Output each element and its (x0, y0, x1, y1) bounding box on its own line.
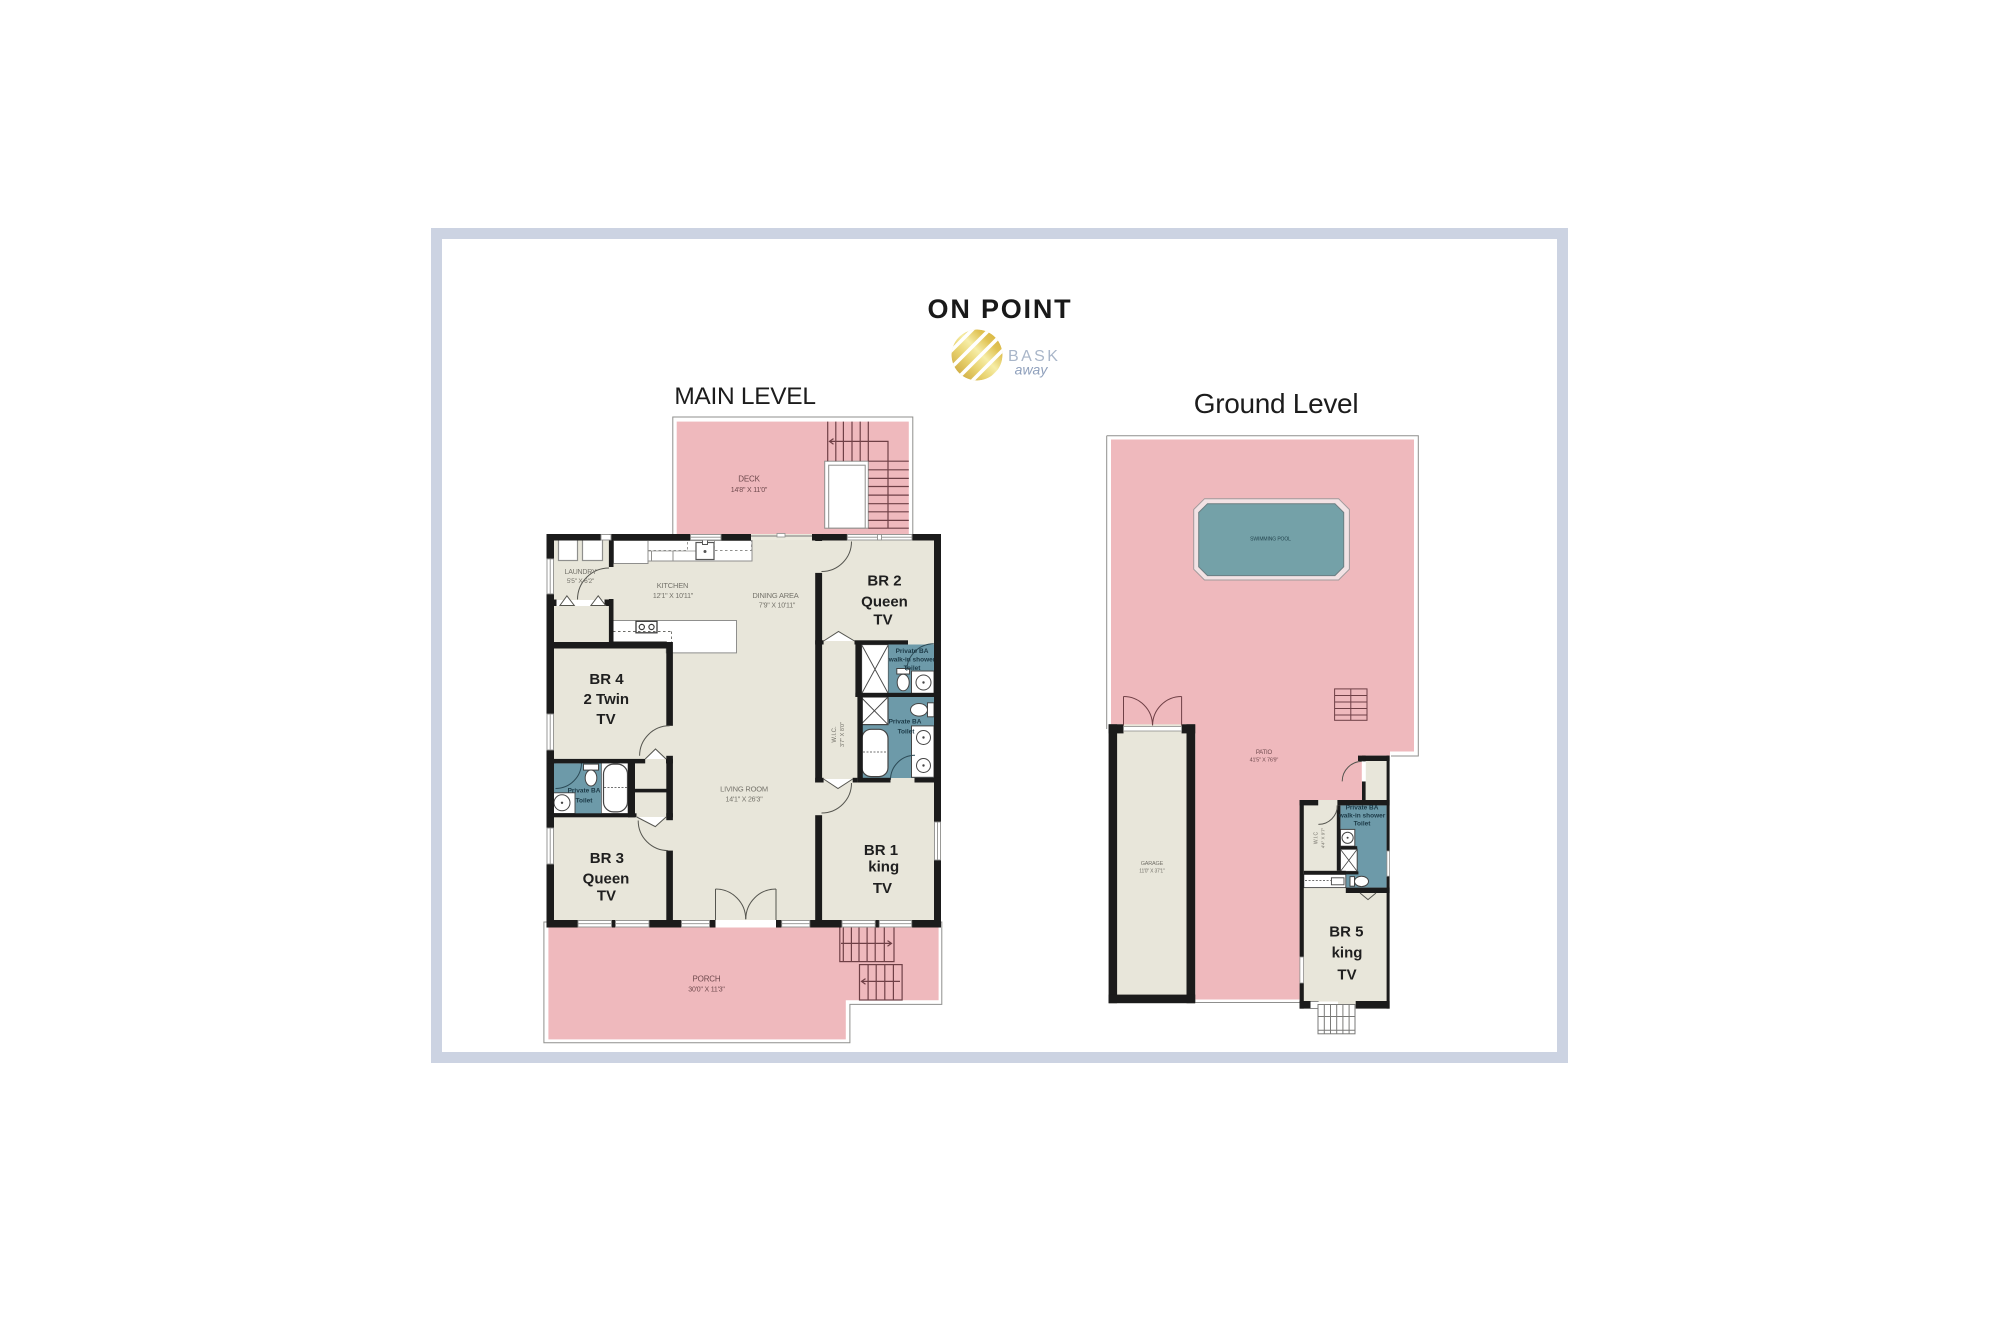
svg-text:TV: TV (873, 611, 892, 628)
svg-text:TV: TV (1337, 967, 1356, 984)
svg-text:12'1" X 10'11": 12'1" X 10'11" (653, 593, 694, 600)
svg-text:W.I.C: W.I.C (1314, 832, 1320, 845)
svg-text:walk-in shower: walk-in shower (888, 657, 936, 664)
svg-text:BR 5: BR 5 (1329, 924, 1363, 941)
svg-text:SWIMMING POOL: SWIMMING POOL (1250, 537, 1291, 543)
svg-text:Toilet: Toilet (904, 665, 922, 672)
svg-text:DINING AREA: DINING AREA (752, 591, 798, 600)
svg-text:Toilet: Toilet (576, 798, 594, 805)
svg-text:KITCHEN: KITCHEN (657, 581, 689, 590)
svg-text:Private BA: Private BA (896, 648, 929, 655)
svg-text:Private BA: Private BA (889, 719, 922, 726)
svg-text:walk-in shower: walk-in shower (1338, 813, 1386, 820)
svg-text:BR 1: BR 1 (864, 842, 898, 859)
svg-text:ON POINT: ON POINT (928, 294, 1073, 324)
svg-text:TV: TV (596, 711, 615, 728)
svg-text:Toilet: Toilet (1354, 821, 1372, 828)
svg-text:7'9" X 10'11": 7'9" X 10'11" (759, 603, 796, 610)
svg-text:Queen: Queen (861, 593, 908, 610)
svg-text:Queen: Queen (583, 871, 630, 888)
svg-text:30'0" X 11'3": 30'0" X 11'3" (688, 986, 725, 993)
svg-text:3'7" X 8'0": 3'7" X 8'0" (840, 722, 846, 747)
svg-text:TV: TV (597, 888, 616, 905)
svg-text:14'8" X 11'0": 14'8" X 11'0" (731, 487, 768, 494)
svg-text:BR 2: BR 2 (867, 573, 901, 590)
svg-text:away: away (1015, 362, 1049, 378)
svg-text:king: king (1332, 945, 1363, 962)
svg-text:Ground Level: Ground Level (1194, 388, 1359, 419)
svg-text:41'5" X 76'9": 41'5" X 76'9" (1250, 758, 1279, 764)
svg-text:PATIO: PATIO (1256, 750, 1273, 756)
svg-text:5'5" X 6'2": 5'5" X 6'2" (567, 578, 595, 585)
svg-text:4'4" X 9'7": 4'4" X 9'7" (1321, 827, 1326, 848)
svg-text:LAUNDRY: LAUNDRY (565, 569, 597, 576)
svg-text:king: king (868, 859, 899, 876)
svg-text:W.I.C.: W.I.C. (832, 726, 838, 743)
svg-text:TV: TV (873, 880, 892, 897)
svg-text:Toilet: Toilet (898, 729, 916, 736)
svg-text:BR 3: BR 3 (590, 850, 624, 867)
svg-text:LIVING ROOM: LIVING ROOM (720, 785, 768, 794)
svg-text:Private BA: Private BA (1346, 805, 1379, 812)
svg-text:DECK: DECK (738, 475, 760, 484)
svg-text:BR 4: BR 4 (589, 671, 624, 688)
svg-text:14'1" X 26'3": 14'1" X 26'3" (726, 797, 764, 804)
svg-text:GARAGE: GARAGE (1141, 861, 1164, 867)
svg-text:MAIN LEVEL: MAIN LEVEL (674, 383, 815, 410)
svg-text:Private BA: Private BA (568, 788, 601, 795)
svg-text:PORCH: PORCH (693, 975, 721, 984)
svg-text:2 Twin: 2 Twin (584, 691, 630, 708)
svg-text:11'0" X 37'1": 11'0" X 37'1" (1139, 869, 1165, 875)
